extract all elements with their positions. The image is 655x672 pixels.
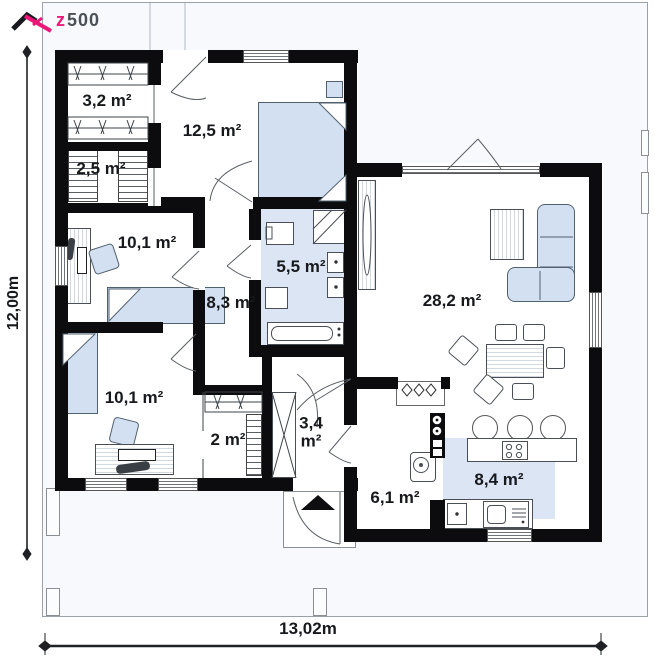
wall-segment (589, 163, 602, 542)
door-opening (148, 168, 161, 206)
wall-segment (344, 377, 398, 389)
brand-text-z: z (56, 10, 65, 31)
room-label-wardrobe1: 3,2 m² (82, 91, 131, 111)
room-label-living: 28,2 m² (423, 291, 482, 311)
sink-basin-icon (487, 505, 506, 524)
wall-segment (430, 500, 445, 530)
terrace-post (641, 130, 649, 156)
brand-logo: z500 (10, 6, 100, 34)
sink-icon (327, 277, 344, 298)
window (85, 478, 127, 491)
dimension-width-label: 13,02m (279, 619, 337, 639)
sideboard-icon (490, 209, 524, 260)
room-label-hallway: 8,3 m² (206, 293, 255, 313)
entrance-arrow-icon (301, 495, 335, 510)
dimension-height-label: 12,00m (5, 276, 23, 330)
room-label-utility: 6,1 m² (370, 488, 419, 508)
room-label-entry: 3,4 m² (288, 415, 334, 452)
wall-segment (441, 377, 450, 389)
door-opening (193, 248, 205, 290)
door-opening (148, 85, 161, 123)
room-label-bathroom: 5,5 m² (276, 257, 325, 277)
window (243, 50, 289, 63)
door-opening (163, 50, 208, 63)
chair-icon (546, 347, 565, 369)
wall-segment (344, 478, 357, 542)
chair-icon (512, 383, 534, 400)
door-opening (205, 197, 253, 209)
room-label-closet1: 2,5 m² (76, 159, 125, 179)
wall-segment (262, 357, 272, 385)
wall-segment (357, 163, 402, 177)
floor-plan-canvas: 3,2 m² 12,5 m² 2,5 m² 10,1 m² 5,5 m² 8,3… (0, 0, 655, 672)
window (55, 246, 68, 286)
entrance-door-opening (293, 478, 344, 491)
room-label-closet2: 2 m² (211, 430, 246, 450)
wall-segment (55, 322, 163, 333)
door-opening (344, 425, 357, 467)
terrace-post (46, 488, 60, 536)
door-opening (249, 240, 261, 280)
shower-icon (313, 210, 346, 244)
shelf-unit-icon (246, 414, 262, 476)
toilet-icon (265, 287, 288, 309)
room-label-office: 10,1 m² (118, 233, 177, 253)
keyboard-icon (118, 449, 156, 461)
double-bed-icon (258, 102, 346, 202)
chair-icon (523, 324, 545, 341)
wall-segment (55, 142, 149, 151)
sofa-icon (507, 267, 575, 302)
room-label-bedroom1: 12,5 m² (183, 121, 242, 141)
brand-text-500: 500 (67, 10, 100, 31)
terrace-post (313, 588, 327, 616)
hob-icon (502, 441, 528, 460)
nightstand-icon (326, 81, 343, 98)
room-label-kitchen: 8,4 m² (474, 470, 523, 490)
wall-segment (262, 385, 272, 478)
counter-module-icon (447, 503, 467, 525)
roof-icon (10, 6, 54, 34)
dining-table-icon (486, 344, 544, 378)
terrace-post (46, 588, 60, 616)
window (158, 478, 198, 491)
wall-segment (249, 345, 344, 357)
wall-segment (193, 322, 205, 385)
sink-icon (327, 252, 344, 273)
chair-icon (495, 324, 517, 341)
terrace-door-glazing (402, 166, 540, 174)
terrace-post (641, 172, 649, 214)
window (589, 292, 602, 348)
bathtub-basin-icon (271, 326, 333, 341)
washing-machine-icon (266, 222, 294, 245)
radiator-icon (396, 381, 445, 406)
tall-cabinet-icon (358, 180, 376, 290)
wall-segment (193, 385, 272, 395)
monitor-icon (77, 247, 87, 274)
window (487, 529, 532, 542)
oven-column-icon (430, 413, 445, 458)
wall-segment (357, 529, 602, 542)
room-label-bedroom2: 10,1 m² (105, 388, 164, 408)
